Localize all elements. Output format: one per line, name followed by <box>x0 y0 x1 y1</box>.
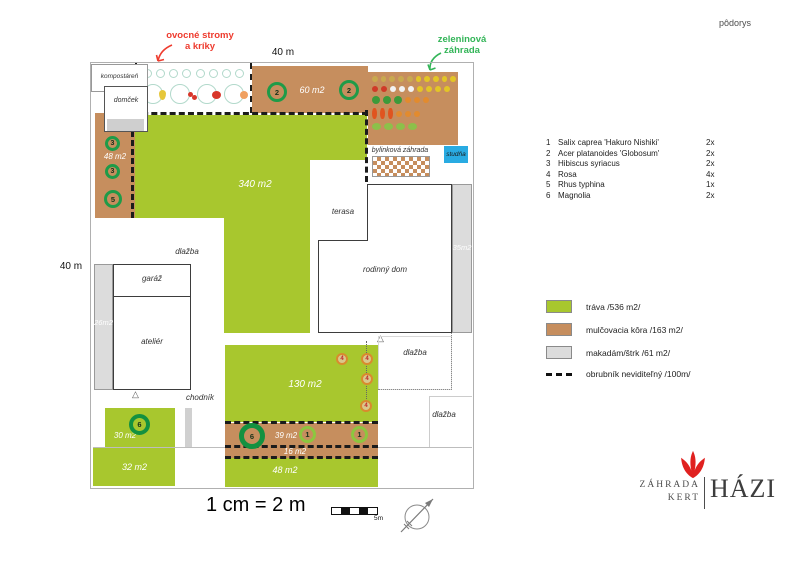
plant-marker-1: 1 <box>299 426 316 443</box>
legend-row-gravel: makadám/štrk /61 m2/ <box>546 346 670 359</box>
plant-list: 1 Salix caprea 'Hakuro Nishiki' 2x 2 Ace… <box>546 138 726 201</box>
compost-label: kompostáreň <box>92 73 147 80</box>
fruit-tree-circle <box>170 84 190 104</box>
dimension-left: 40 m <box>52 261 90 272</box>
area-label-130: 130 m2 <box>275 379 335 390</box>
area-label-48-left: 48 m2 <box>95 152 135 161</box>
peach-icon <box>240 91 248 99</box>
terrace-label: terasa <box>318 207 368 216</box>
plant-qty: 2x <box>706 138 726 149</box>
plant-marker-4: 4 <box>361 353 373 365</box>
shed-box: domček <box>104 86 148 132</box>
gravel-swatch-icon <box>546 346 572 359</box>
legend-label: tráva /536 m2/ <box>586 302 640 312</box>
plant-num: 4 <box>546 170 558 181</box>
legend-label: obrubník neviditeľný /100m/ <box>586 369 691 379</box>
garage-studio-divider <box>114 296 190 297</box>
plant-name: Rosa <box>558 170 706 181</box>
plant-marker-4: 4 <box>360 400 372 412</box>
plant-list-row: 2 Acer platanoides 'Globosum' 2x <box>546 149 726 160</box>
apple-icon <box>212 91 221 99</box>
plant-qty: 2x <box>706 149 726 160</box>
scale-bar-label: 5m <box>374 515 383 522</box>
pear-icon <box>159 90 166 100</box>
logo-word-zahrada: ZÁHRADA <box>612 480 700 490</box>
plant-name: Magnolia <box>558 191 706 202</box>
gravel-right-area-label: 35m2 <box>448 243 476 252</box>
legend-row-edge: obrubník neviditeľný /100m/ <box>546 369 691 379</box>
walkway-label: chodník <box>170 393 230 402</box>
area-label-60: 60 m2 <box>290 85 334 95</box>
tulip-logo-icon <box>676 450 710 479</box>
plant-marker-1: 1 <box>351 426 368 443</box>
lawn-area-main-left <box>135 160 224 218</box>
dashed-edge <box>365 110 368 182</box>
plan-type-label: pôdorys <box>700 18 770 28</box>
entrance-triangle-icon: △ <box>132 390 139 399</box>
shed-label: domček <box>105 97 147 104</box>
plant-num: 3 <box>546 159 558 170</box>
well-box: studňa <box>444 146 468 163</box>
logo-word-hazi: HÁZI <box>710 474 776 504</box>
fruit-annotation-line1: ovocné stromy <box>150 30 250 41</box>
scale-text: 1 cm = 2 m <box>206 494 305 517</box>
area-label-32: 32 m2 <box>112 462 157 472</box>
plant-qty: 2x <box>706 191 726 202</box>
gravel-strip-right <box>452 184 472 333</box>
plant-list-row: 3 Hibiscus syriacus 2x <box>546 159 726 170</box>
plant-marker-4: 4 <box>336 353 348 365</box>
herb-garden-bed <box>372 156 430 177</box>
dashed-edge <box>133 112 368 115</box>
legend-row-mulch: mulčovacia kôra /163 m2/ <box>546 323 683 336</box>
dashed-line-icon <box>546 373 572 376</box>
lawn-area-main-top <box>135 115 367 160</box>
fruit-tree-circle <box>224 84 244 104</box>
studio-label: ateliér <box>113 337 191 346</box>
plant-marker-6: 6 <box>129 414 150 435</box>
lawn-swatch-icon <box>546 300 572 313</box>
dotted-edge <box>451 333 452 390</box>
plant-marker-5: 5 <box>104 190 122 208</box>
paving-outline-1 <box>378 336 452 390</box>
vegetable-icons <box>372 76 456 134</box>
well-label: studňa <box>444 146 468 163</box>
plant-name: Rhus typhina <box>558 180 706 191</box>
plant-name: Acer platanoides 'Globosum' <box>558 149 706 160</box>
plant-marker-2: 2 <box>267 82 287 102</box>
mulch-swatch-icon <box>546 323 572 336</box>
plant-marker-3: 3 <box>105 164 120 179</box>
fruit-trees-area <box>135 63 252 113</box>
logo-divider <box>704 477 705 509</box>
plant-marker-6: 6 <box>239 423 265 449</box>
plant-qty: 2x <box>706 159 726 170</box>
plant-name: Hibiscus syriacus <box>558 159 706 170</box>
area-label-48-street: 48 m2 <box>265 465 305 475</box>
plant-list-row: 4 Rosa 4x <box>546 170 726 181</box>
dotted-edge <box>378 389 452 390</box>
garden-plan-page: pôdorys ovocné stromy a kríky zeleninová… <box>0 0 800 566</box>
plant-marker-3: 3 <box>105 136 120 151</box>
vegetable-row <box>372 123 456 130</box>
vegetable-row <box>372 96 456 104</box>
legend-row-lawn: tráva /536 m2/ <box>546 300 640 313</box>
herb-garden-label: bylinková záhrada <box>368 147 432 154</box>
plant-num: 6 <box>546 191 558 202</box>
cherry-icon <box>192 95 197 100</box>
legend-label: makadám/štrk /61 m2/ <box>586 348 670 358</box>
plant-qty: 4x <box>706 170 726 181</box>
legend-label: mulčovacia kôra /163 m2/ <box>586 325 683 335</box>
plant-marker-2: 2 <box>339 80 359 100</box>
paving-label-1: dlažba <box>157 247 217 256</box>
plant-list-row: 1 Salix caprea 'Hakuro Nishiki' 2x <box>546 138 726 149</box>
walkway-strip <box>185 408 192 447</box>
fruit-tree-circle <box>197 84 217 104</box>
veg-annotation-line1: zeleninová <box>425 34 499 45</box>
plant-qty: 1x <box>706 180 726 191</box>
house-label: rodinný dom <box>335 265 435 274</box>
fruit-tree-circles-row <box>137 78 250 104</box>
area-label-16: 16 m2 <box>275 446 315 457</box>
plant-list-row: 5 Rhus typhina 1x <box>546 180 726 191</box>
plant-list-row: 6 Magnolia 2x <box>546 191 726 202</box>
paving-outline-2 <box>429 396 472 447</box>
plant-marker-4: 4 <box>361 373 373 385</box>
gravel-strip-left <box>94 264 113 390</box>
street-line <box>93 447 225 448</box>
plant-num: 5 <box>546 180 558 191</box>
plant-num: 2 <box>546 149 558 160</box>
street-line <box>378 447 472 448</box>
scale-bar <box>331 507 378 515</box>
plant-name: Salix caprea 'Hakuro Nishiki' <box>558 138 706 149</box>
shed-pad <box>107 119 144 131</box>
area-label-340: 340 m2 <box>225 179 285 190</box>
garage-label: garáž <box>113 274 191 283</box>
plant-num: 1 <box>546 138 558 149</box>
shrub-circles-row <box>137 63 250 78</box>
vegetable-row <box>372 108 456 119</box>
vegetable-row <box>372 76 456 82</box>
dimension-top: 40 m <box>261 47 305 58</box>
logo-word-kert: KERT <box>612 493 700 503</box>
north-arrow-icon <box>396 494 438 536</box>
vegetable-row <box>372 86 456 92</box>
